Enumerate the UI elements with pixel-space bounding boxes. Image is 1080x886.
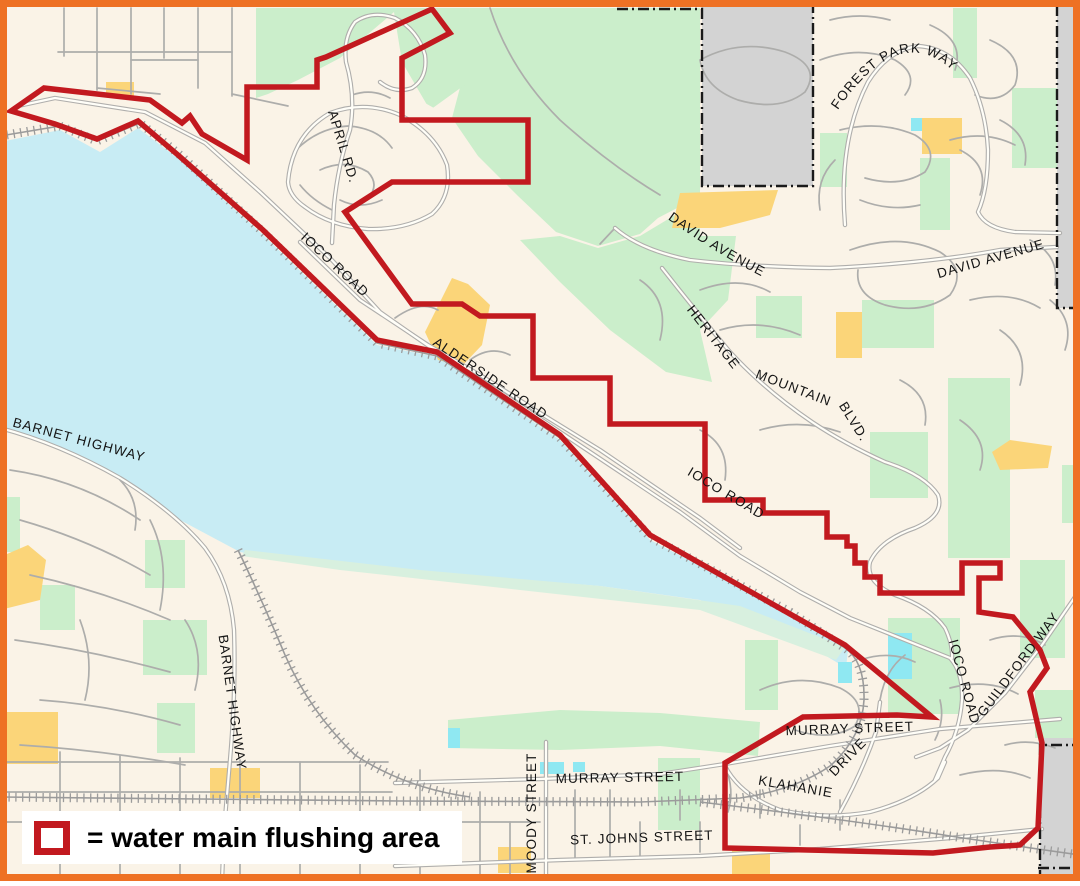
street-label: MURRAY STREET bbox=[556, 769, 685, 786]
map-svg: APRIL RD.IOCO ROADALDERSIDE ROADIOCO ROA… bbox=[0, 0, 1080, 881]
map-canvas: APRIL RD.IOCO ROADALDERSIDE ROADIOCO ROA… bbox=[0, 0, 1080, 881]
street-label: MOODY STREET bbox=[524, 753, 539, 874]
flushing-area-swatch bbox=[34, 821, 70, 855]
legend-caption: = water main flushing area bbox=[87, 822, 439, 854]
legend: = water main flushing area bbox=[22, 811, 462, 864]
